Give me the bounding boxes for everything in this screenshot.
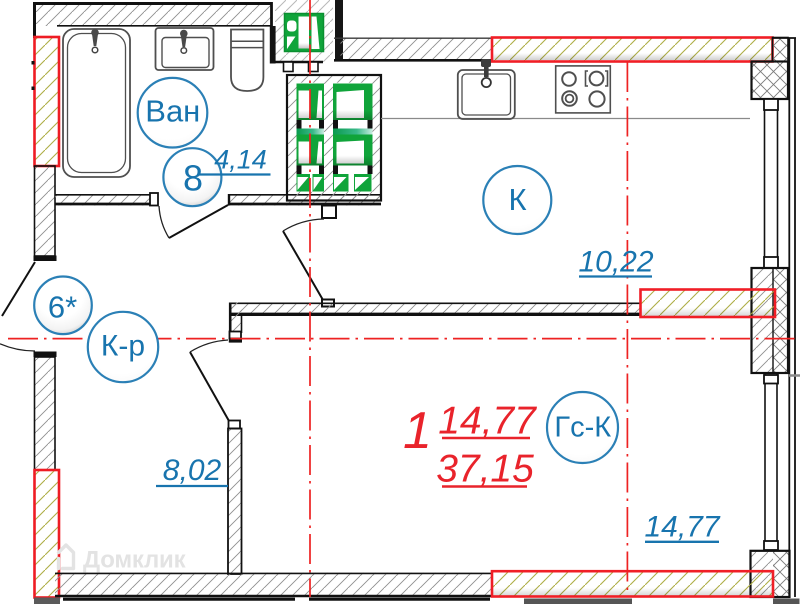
svg-text:37,15: 37,15 xyxy=(436,448,534,491)
svg-text:14,77: 14,77 xyxy=(644,511,720,544)
svg-text:8,02: 8,02 xyxy=(163,454,222,487)
svg-text:Гс-К: Гс-К xyxy=(554,412,611,444)
svg-text:Ван: Ван xyxy=(145,94,200,129)
svg-text:1: 1 xyxy=(403,402,432,460)
svg-text:10,22: 10,22 xyxy=(578,246,653,279)
svg-text:14,77: 14,77 xyxy=(438,400,537,443)
svg-text:6*: 6* xyxy=(48,290,77,325)
svg-text:Домклик: Домклик xyxy=(83,547,187,574)
svg-text:К: К xyxy=(508,182,526,217)
svg-text:8: 8 xyxy=(183,158,203,199)
svg-text:К-р: К-р xyxy=(101,330,145,363)
svg-text:4,14: 4,14 xyxy=(214,145,267,175)
